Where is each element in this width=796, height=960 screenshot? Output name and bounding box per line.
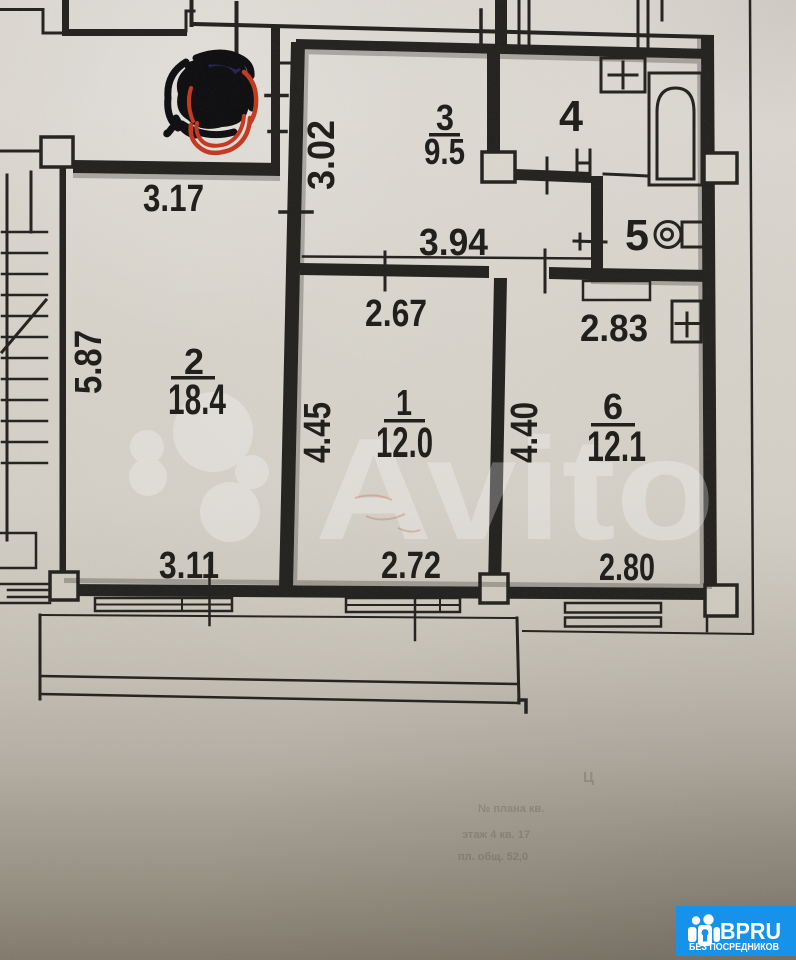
svg-text:этаж 4 кв. 17: этаж 4 кв. 17 <box>462 829 530 841</box>
svg-text:БЕЗ ПОСРЕДНИКОВ: БЕЗ ПОСРЕДНИКОВ <box>689 942 779 953</box>
svg-text:№ плана кв.: № плана кв. <box>478 803 544 815</box>
svg-text:пл. общ. 52,0: пл. общ. 52,0 <box>458 851 528 863</box>
svg-text:BPRU: BPRU <box>720 918 781 944</box>
svg-text:Ц: Ц <box>583 769 594 786</box>
